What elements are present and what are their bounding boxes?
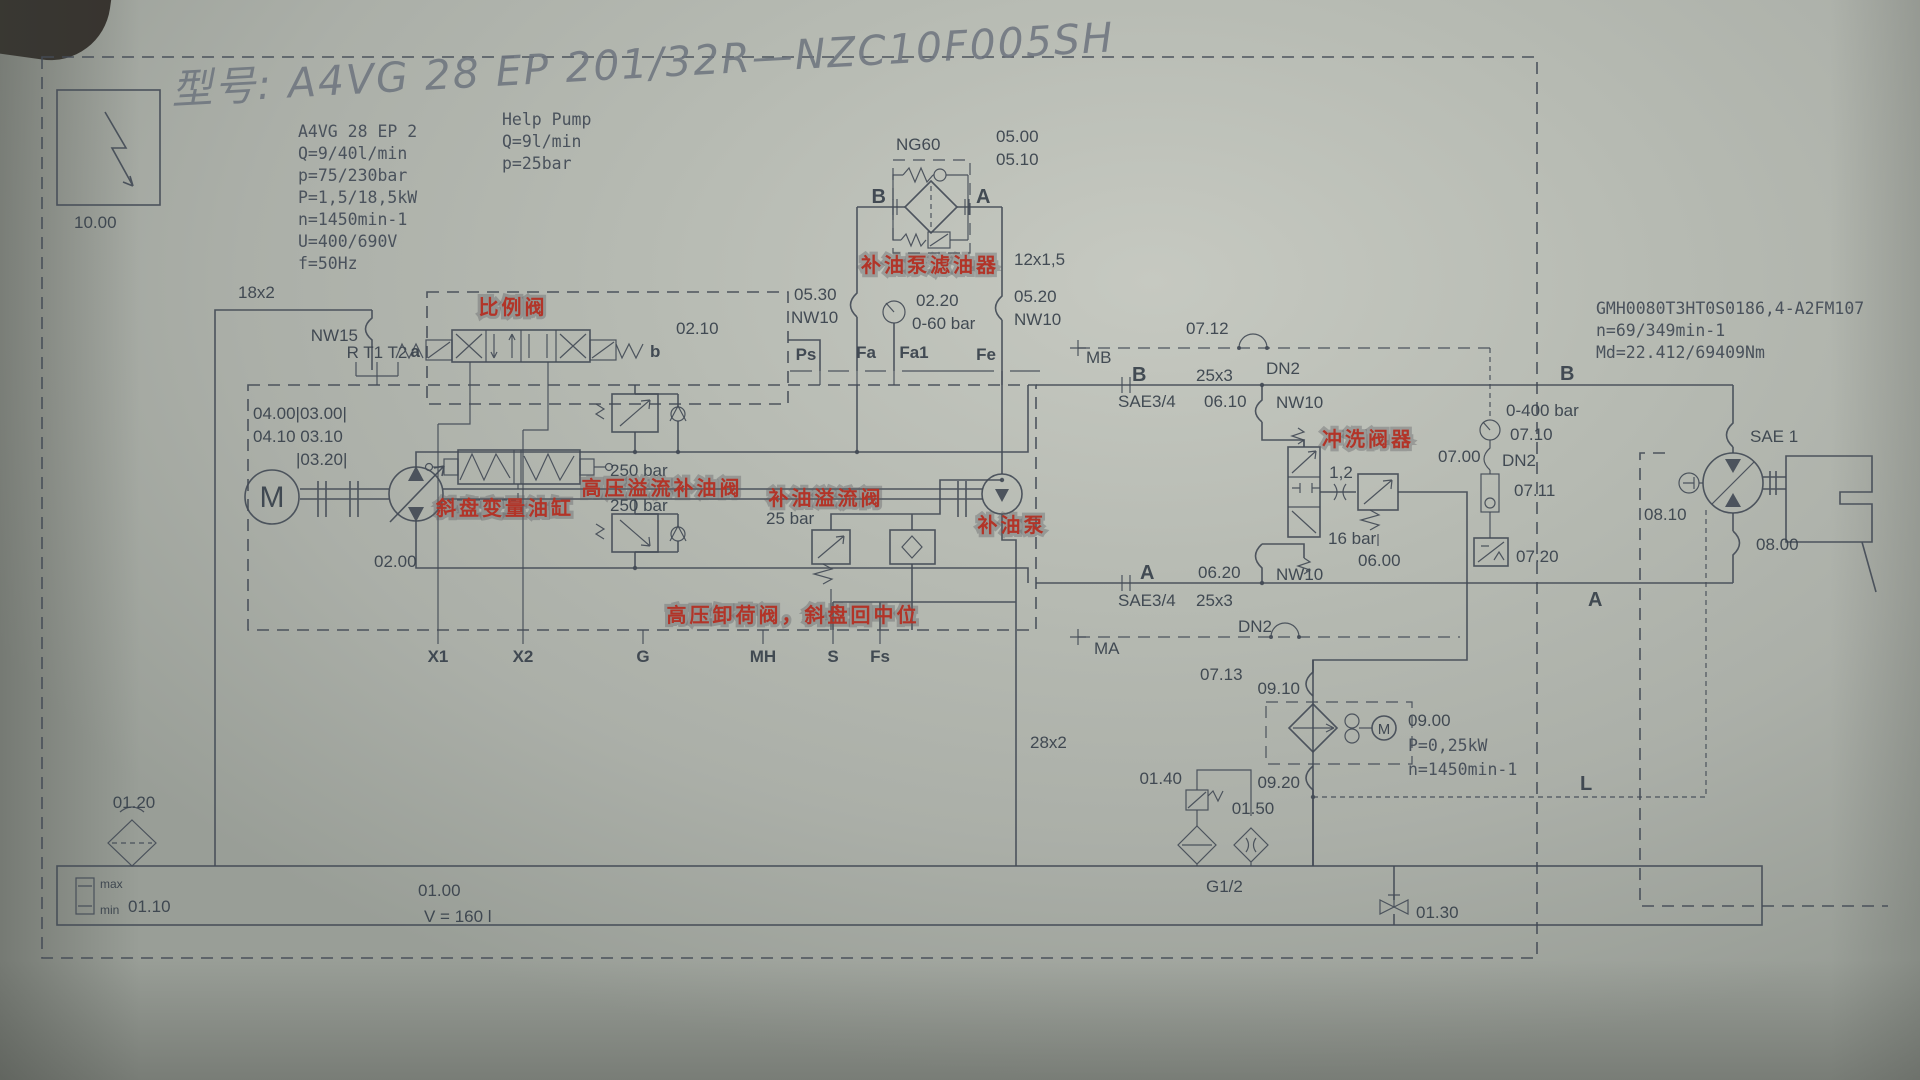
- hydraulic-motor-specs: GMH0080T3HT0S0186,4-A2FM107 n=69/349min-…: [1596, 299, 1864, 362]
- label-05-10: 05.10: [996, 150, 1039, 169]
- label-nw10-left: NW10: [791, 308, 838, 327]
- spec-line: f=50Hz: [298, 254, 358, 273]
- label-01-50: 01.50: [1232, 799, 1275, 818]
- motor-shaft: [1763, 471, 1786, 495]
- label-02-10: 02.10: [676, 319, 719, 338]
- label-07-00: 07.00: [1438, 447, 1481, 466]
- port-mb: MB: [1086, 348, 1112, 367]
- oil-cooler: [1289, 660, 1396, 866]
- label-b-line: B: [1132, 364, 1146, 386]
- breather-filter-icon: [108, 807, 156, 866]
- test-point-07-11: [1481, 474, 1499, 512]
- label-g12: G1/2: [1206, 877, 1243, 896]
- handwritten-title: 型号: A4VG 28 EP 201/32R—NZC10F005SH: [170, 13, 1116, 114]
- port-b-filter: B: [872, 186, 886, 208]
- port-s: S: [827, 647, 838, 666]
- help-pump-specs: Help Pump Q=9l/min p=25bar: [502, 110, 591, 173]
- port-fs: Fs: [870, 647, 890, 666]
- port-a-filter: A: [976, 186, 990, 208]
- annotation-swashplate-cylinder: 斜盘变量油缸: [435, 496, 574, 520]
- hose-09-20: [1306, 766, 1313, 866]
- dn2-hose-mb: [1239, 334, 1267, 348]
- label-05-20: 05.20: [1014, 287, 1057, 306]
- dn2-hose-ma: [1271, 623, 1299, 637]
- label-05-30: 05.30: [794, 285, 837, 304]
- label-08-10: 08.10: [1644, 505, 1687, 524]
- label-dn2-b: DN2: [1266, 359, 1300, 378]
- orifice-01-50: [1234, 828, 1268, 866]
- label-0-60-bar: 0-60 bar: [912, 314, 976, 333]
- flushing-valve-unit: [1256, 383, 1468, 866]
- port-ma: MA: [1094, 639, 1120, 658]
- spec-line: Q=9l/min: [502, 132, 581, 151]
- port-mh: MH: [750, 647, 776, 666]
- filter-01-40: [1178, 826, 1216, 866]
- flushing-valve-body: [1288, 447, 1320, 537]
- label-06-00: 06.00: [1358, 551, 1401, 570]
- drive-shaft: [300, 481, 389, 517]
- label-sae34-b: SAE3/4: [1118, 392, 1176, 411]
- hydraulic-schematic: 10.00 型号: A4VG 28 EP 201/32R—NZC10F005SH…: [0, 0, 1920, 1080]
- label-01-00: 01.00: [418, 881, 461, 900]
- label-cooler-power: P=0,25kW: [1408, 736, 1488, 755]
- label-25x3-a: 25x3: [1196, 591, 1233, 610]
- annotation-proportional-valve: 比例阀: [479, 295, 548, 319]
- port-fa: Fa: [856, 343, 876, 362]
- label-codes-3: |03.20|: [296, 450, 347, 469]
- label-cooler-speed: n=1450min-1: [1408, 760, 1517, 779]
- label-07-11: 07.11: [1514, 481, 1555, 500]
- spec-line: A4VG 28 EP 2: [298, 122, 417, 141]
- lightning-icon: [105, 112, 133, 186]
- port-ps: Ps: [796, 345, 817, 364]
- annotation-flushing-valve: 冲洗阀器: [1322, 427, 1414, 451]
- label-codes-2: 04.10 03.10: [253, 427, 343, 446]
- port-fe: Fe: [976, 345, 996, 364]
- label-b-right: B: [1560, 363, 1574, 385]
- spec-line: p=25bar: [502, 154, 572, 173]
- label-02-20: 02.20: [916, 291, 959, 310]
- label-28x2: 28x2: [1030, 733, 1067, 752]
- spec-line: Q=9/40l/min: [298, 144, 407, 163]
- spec-line: P=1,5/18,5kW: [298, 188, 417, 207]
- label-12x1-5: 12x1,5: [1014, 250, 1065, 269]
- fan-icon: [1345, 714, 1359, 728]
- label-06-20: 06.20: [1198, 563, 1241, 582]
- label-10-00: 10.00: [74, 213, 117, 232]
- label-05-00: 05.00: [996, 127, 1039, 146]
- label-nw10-b: NW10: [1276, 393, 1323, 412]
- label-07-20: 07.20: [1516, 547, 1559, 566]
- label-07-13: 07.13: [1200, 665, 1243, 684]
- spec-line: GMH0080T3HT0S0186,4-A2FM107: [1596, 299, 1864, 318]
- label-sae34-a: SAE3/4: [1118, 591, 1176, 610]
- label-orifice-1-2: 1,2: [1329, 463, 1353, 482]
- oil-tank: [57, 807, 1762, 925]
- centering-springs: [396, 344, 643, 358]
- label-nw10-a: NW10: [1276, 565, 1323, 584]
- label-min: min: [100, 903, 119, 917]
- shutoff-valve-01-30: [1380, 895, 1408, 914]
- label-a-right: A: [1588, 589, 1602, 611]
- label-l-drain: L: [1580, 773, 1592, 795]
- annotation-charge-relief: 补油溢流阀: [768, 486, 884, 510]
- label-09-20: 09.20: [1257, 773, 1300, 792]
- label-codes-1: 04.00|03.00|: [253, 404, 347, 423]
- label-07-12: 07.12: [1186, 319, 1229, 338]
- port-x1: X1: [428, 647, 449, 666]
- cooler-return-line: [1313, 492, 1467, 866]
- label-09-00: 09.00: [1408, 711, 1451, 730]
- label-01-40: 01.40: [1139, 769, 1182, 788]
- port-fa1: Fa1: [899, 343, 928, 362]
- label-08-00: 08.00: [1756, 535, 1799, 554]
- bottom-port-row: [438, 630, 880, 644]
- label-18x2: 18x2: [238, 283, 275, 302]
- level-gauge-icon: [76, 878, 94, 914]
- label-dn2-test: DN2: [1502, 451, 1536, 470]
- label-09-10: 09.10: [1257, 679, 1300, 698]
- spec-line: n=69/349min-1: [1596, 321, 1725, 340]
- label-16bar: 16 bar: [1328, 529, 1377, 548]
- label-a-line: A: [1140, 562, 1154, 584]
- electric-supply-box: [57, 90, 160, 205]
- label-ng60: NG60: [896, 135, 940, 154]
- label-07-10: 07.10: [1510, 425, 1553, 444]
- label-25bar: 25 bar: [766, 509, 815, 528]
- label-02-00: 02.00: [374, 552, 417, 571]
- annotation-hp-unload: 高压卸荷阀，斜盘回中位: [667, 603, 920, 627]
- spec-line: Help Pump: [502, 110, 591, 129]
- label-sae1: SAE 1: [1750, 427, 1798, 446]
- hose-09-10: [1306, 660, 1313, 696]
- label-01-30: 01.30: [1416, 903, 1459, 922]
- nw15-hose: [215, 310, 372, 866]
- label-a: a: [411, 342, 421, 361]
- label-0-400bar: 0-400 bar: [1506, 401, 1579, 420]
- label-01-10: 01.10: [128, 897, 171, 916]
- schematic-photo: 10.00 型号: A4VG 28 EP 201/32R—NZC10F005SH…: [0, 0, 1920, 1080]
- spec-line: n=1450min-1: [298, 210, 407, 229]
- spec-line: Md=22.412/69409Nm: [1596, 343, 1765, 362]
- label-01-20: 01.20: [113, 793, 156, 812]
- spec-line: p=75/230bar: [298, 166, 407, 185]
- suction-return-lines: [215, 310, 398, 866]
- main-pump-specs: A4VG 28 EP 2 Q=9/40l/min p=75/230bar P=1…: [298, 122, 417, 273]
- spec-line: U=400/690V: [298, 232, 397, 251]
- label-volume: V = 160 l: [424, 907, 492, 926]
- port-g: G: [636, 647, 649, 666]
- port-x2: X2: [513, 647, 534, 666]
- shuttle-valve: [890, 530, 935, 564]
- tank-accessories: [1178, 770, 1408, 925]
- annotation-charge-filter: 补油泵滤油器: [860, 253, 999, 277]
- label-dn2-ma: DN2: [1238, 617, 1272, 636]
- annotation-charge-pump: 补油泵: [977, 513, 1047, 537]
- label-max: max: [100, 877, 123, 891]
- fan-motor-m: M: [1378, 721, 1391, 738]
- label-b: b: [650, 342, 660, 361]
- motor-m-letter: M: [260, 481, 285, 514]
- hydraulic-motor-a2fm: [1311, 453, 1876, 799]
- a-internal-line: [416, 521, 1028, 583]
- label-25x3-b: 25x3: [1196, 366, 1233, 385]
- label-06-10: 06.10: [1204, 392, 1247, 411]
- annotation-hp-relief-makeup: 高压溢流补油阀: [582, 476, 743, 500]
- actuator-springs: [460, 454, 574, 480]
- b-internal-line: [416, 385, 1028, 467]
- label-nw10-right: NW10: [1014, 310, 1061, 329]
- gearbox-shape: [1786, 456, 1876, 592]
